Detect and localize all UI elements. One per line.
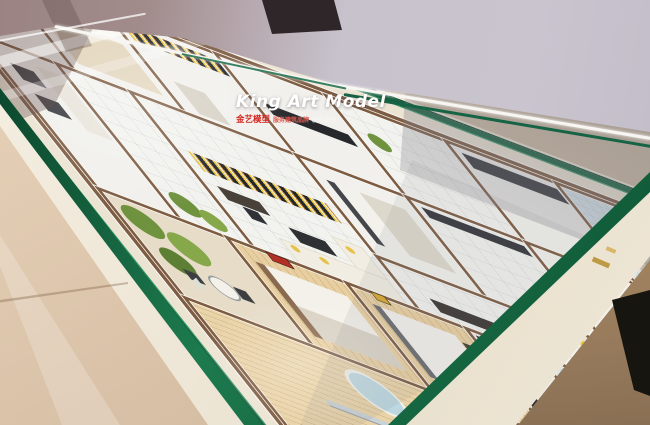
plant <box>363 130 397 155</box>
watermark-tagline-cn: 服务建筑品牌 <box>273 117 309 124</box>
watermark-title: King Art Model <box>236 92 386 112</box>
photo-architectural-model-display: King Art Model 金艺模型 服务建筑品牌 制作定制 <box>0 0 650 425</box>
watermark: King Art Model 金艺模型 服务建筑品牌 制作定制 <box>236 92 386 125</box>
watermark-brand-cn: 金艺模型 服务建筑品牌 制作定制 <box>236 113 386 125</box>
watermark-tagline2-cn: 制作定制 <box>312 117 336 124</box>
